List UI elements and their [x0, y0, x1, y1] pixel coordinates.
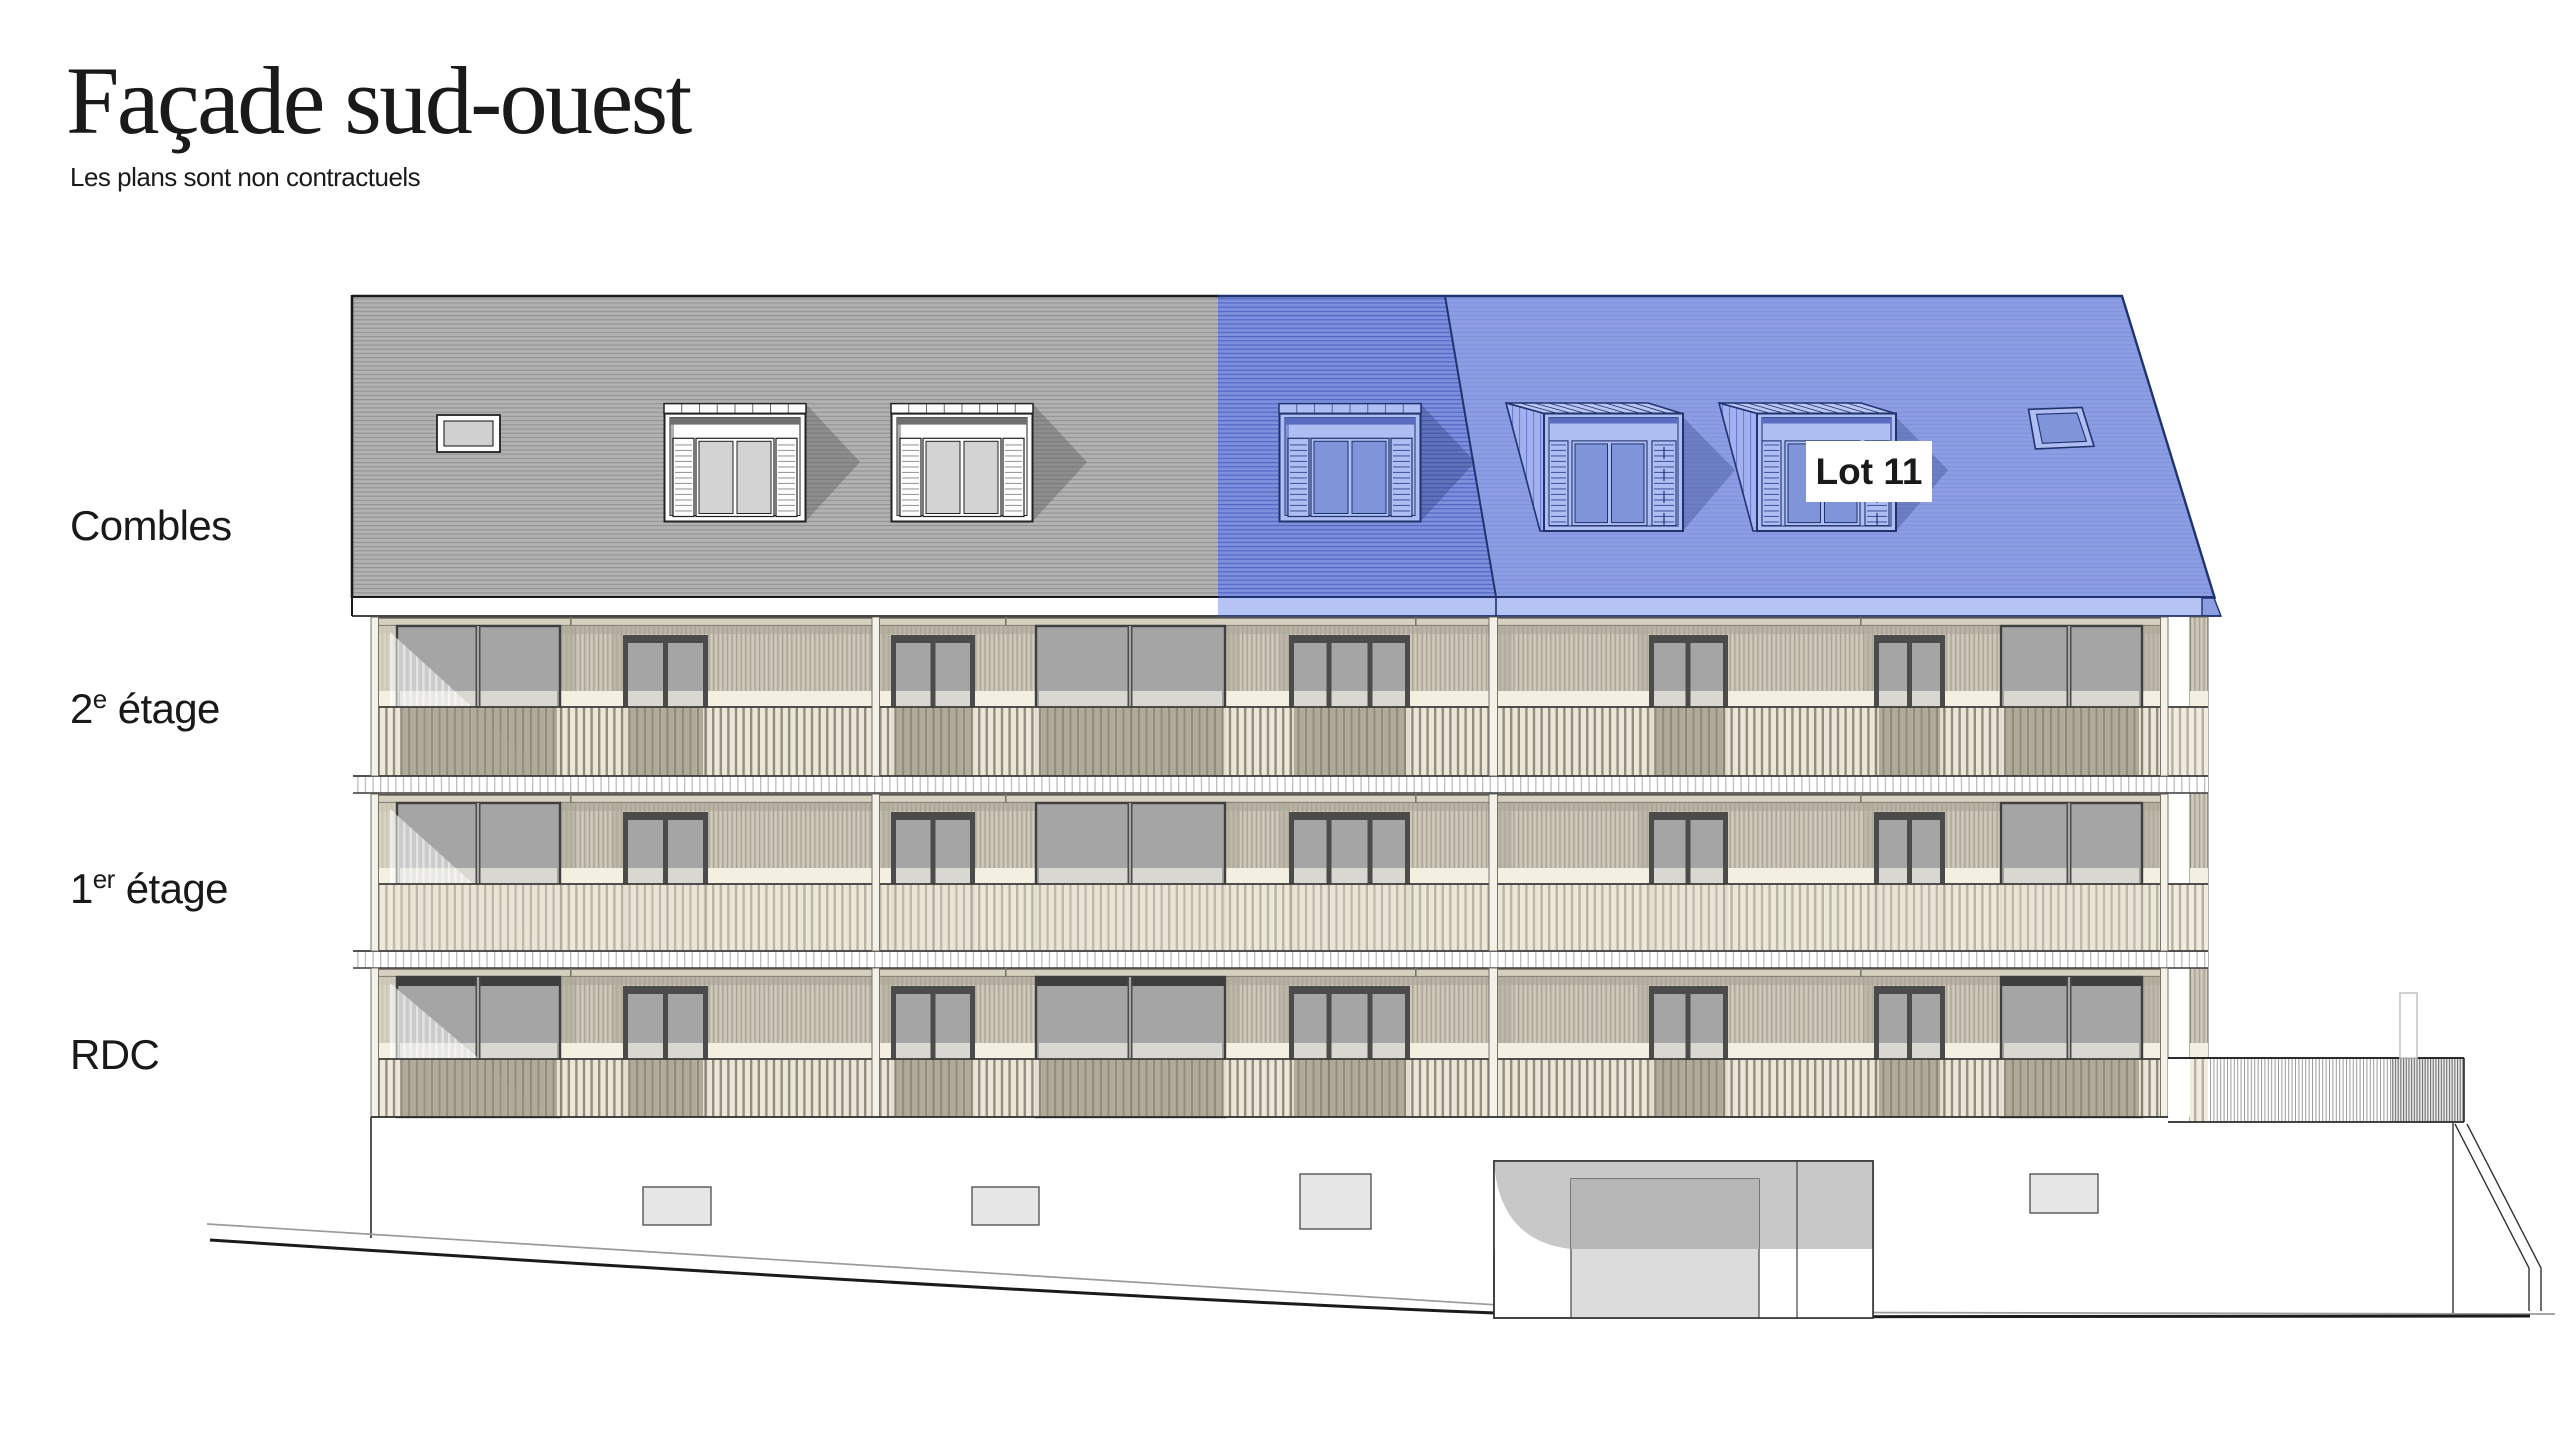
svg-text:2e étage: 2e étage	[70, 684, 220, 732]
svg-text:RDC: RDC	[70, 1031, 159, 1078]
svg-text:Lot 11: Lot 11	[1816, 451, 1923, 492]
svg-text:Combles: Combles	[70, 502, 232, 549]
svg-text:Façade sud-ouest: Façade sud-ouest	[66, 47, 693, 154]
svg-text:Les plans sont non contractuel: Les plans sont non contractuels	[70, 162, 421, 192]
